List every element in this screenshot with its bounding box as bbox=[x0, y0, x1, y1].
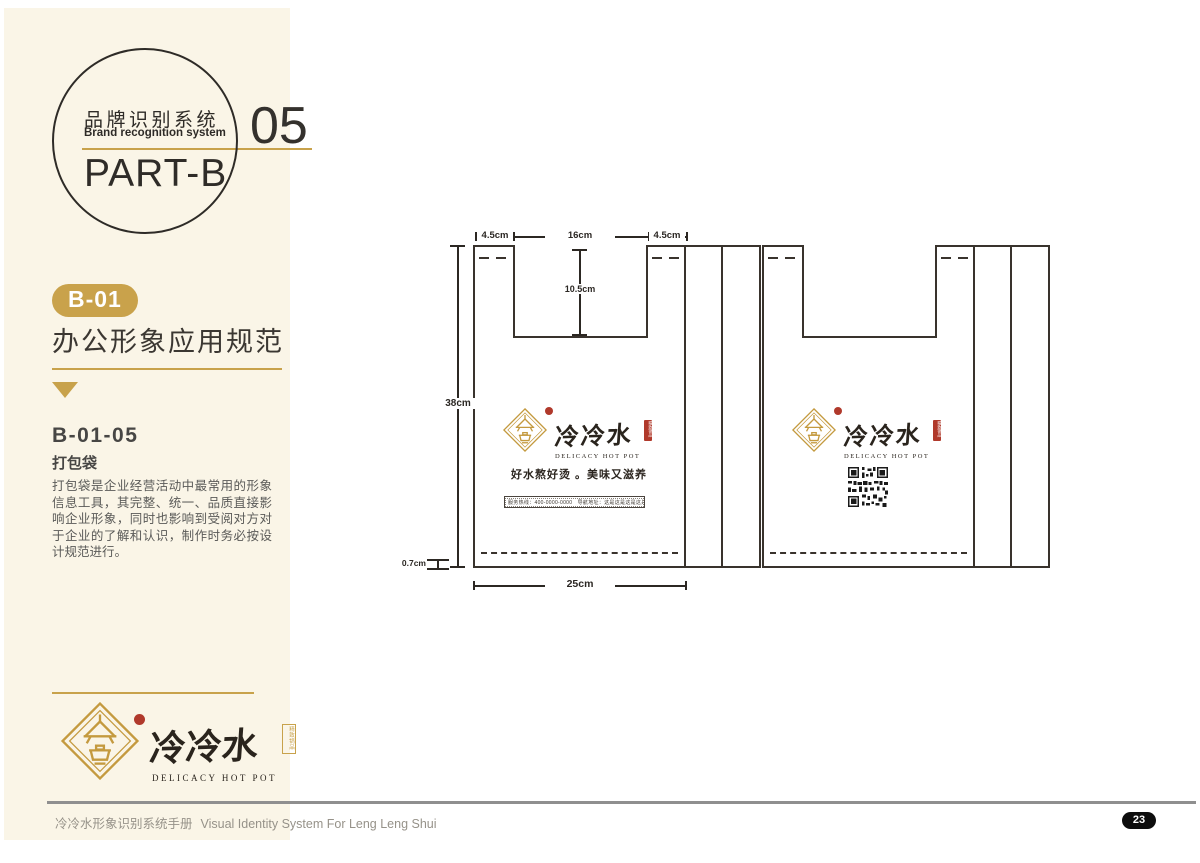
bottom-fold-dashed-line bbox=[770, 552, 967, 554]
dim-cap bbox=[572, 249, 587, 251]
dim-cap bbox=[450, 566, 465, 568]
handle-weld-dash bbox=[958, 257, 968, 259]
brand-logo: 冷冷水 DELICACY HOT POT 精致锅品 bbox=[503, 395, 652, 460]
logo-wordmark-zh: 冷冷水 bbox=[148, 716, 279, 772]
round-seal-icon bbox=[545, 407, 553, 415]
handle-weld-dash bbox=[652, 257, 662, 259]
brand-logo: 冷冷水 DELICACY HOT POT 精致锅品 bbox=[60, 702, 296, 783]
handle-weld-dash bbox=[496, 257, 506, 259]
item-code: B-01-05 bbox=[52, 424, 138, 448]
brand-logo: 冷冷水 DELICACY HOT POT 精致锅品 bbox=[792, 395, 941, 460]
bag-outline bbox=[646, 245, 761, 247]
dim-label-handle-right: 4.5cm bbox=[649, 230, 685, 241]
chapter-number: 05 bbox=[250, 96, 320, 156]
hotpot-diamond-icon bbox=[792, 406, 836, 454]
bag-gusset-fold-line bbox=[973, 245, 975, 568]
footer-caption-en: Visual Identity System For Leng Leng Shu… bbox=[201, 817, 437, 831]
bag-slogan: 好水熬好烫 。美味又滋养 bbox=[473, 466, 685, 482]
gold-rule bbox=[52, 368, 282, 370]
bag-outline bbox=[759, 245, 761, 568]
section-title: 办公形象应用规范 bbox=[52, 320, 284, 359]
bag-info-text: 服务热线：400-0000-0000 导航地址：这是这是这是这是这是这是这是这是… bbox=[505, 498, 644, 507]
part-circle bbox=[52, 48, 238, 234]
bag-front-diagram: 冷冷水 DELICACY HOT POT 精致锅品 好水熬好烫 。美味又滋养 服… bbox=[473, 245, 761, 568]
handle-cutout bbox=[513, 245, 515, 338]
qr-code bbox=[848, 467, 888, 507]
logo-wordmark-en: DELICACY HOT POT bbox=[844, 453, 929, 460]
gold-rule bbox=[52, 692, 254, 694]
handle-cutout bbox=[646, 245, 648, 338]
logo-wordmark-en: DELICACY HOT POT bbox=[555, 453, 640, 460]
handle-weld-dash bbox=[785, 257, 795, 259]
hotpot-diamond-icon bbox=[60, 702, 140, 780]
vi-manual-page: 品牌识别系统 Brand recognition system PART-B B… bbox=[0, 0, 1200, 863]
dim-label-handle-left: 4.5cm bbox=[477, 230, 513, 241]
dim-label-bottom-fold: 0.7cm bbox=[394, 558, 426, 568]
bag-outline bbox=[935, 245, 1050, 247]
vertical-seal: 精致锅品 bbox=[282, 724, 296, 754]
dim-cap bbox=[572, 334, 587, 336]
handle-weld-dash bbox=[768, 257, 778, 259]
handle-cutout bbox=[513, 336, 648, 338]
handle-weld-dash bbox=[941, 257, 951, 259]
dim-tick bbox=[473, 581, 475, 590]
dim-tick bbox=[685, 581, 687, 590]
dim-label-opening: 16cm bbox=[545, 230, 615, 241]
handle-cutout bbox=[802, 336, 937, 338]
bottom-fold-dashed-line bbox=[481, 552, 678, 554]
handle-cutout bbox=[935, 245, 937, 338]
dim-tick bbox=[513, 232, 515, 241]
round-seal-icon bbox=[134, 714, 145, 725]
bag-outline bbox=[762, 566, 1050, 568]
vertical-seal: 精致锅品 bbox=[933, 420, 941, 441]
bag-gusset-fold-line bbox=[1010, 245, 1012, 568]
item-description: 打包袋是企业经营活动中最常用的形象信息工具，其完整、统一、品质直接影响企业形象，… bbox=[52, 478, 272, 561]
footer-caption: 冷冷水形象识别系统手册Visual Identity System For Le… bbox=[55, 813, 437, 832]
bag-outline bbox=[1048, 245, 1050, 568]
bag-info-bar: 服务热线：400-0000-0000 导航地址：这是这是这是这是这是这是这是这是… bbox=[504, 496, 645, 508]
bag-gusset-fold-line bbox=[721, 245, 723, 568]
dim-label-width: 25cm bbox=[545, 578, 615, 590]
dim-line-bottom-fold bbox=[437, 559, 439, 569]
dim-cap bbox=[450, 245, 465, 247]
hotpot-diamond-icon bbox=[503, 406, 547, 454]
logo-wordmark-en: DELICACY HOT POT bbox=[152, 773, 277, 783]
triangle-pointer-icon bbox=[52, 382, 78, 398]
bag-back-diagram: 冷冷水 DELICACY HOT POT 精致锅品 bbox=[762, 245, 1050, 568]
vertical-seal: 精致锅品 bbox=[644, 420, 652, 441]
footer-rule bbox=[47, 801, 1196, 804]
dim-label-depth: 10.5cm bbox=[557, 284, 603, 294]
bag-outline bbox=[473, 566, 761, 568]
footer-caption-zh: 冷冷水形象识别系统手册 bbox=[55, 817, 193, 831]
handle-weld-dash bbox=[669, 257, 679, 259]
section-badge: B-01 bbox=[52, 284, 138, 317]
dim-label-height: 38cm bbox=[437, 398, 479, 409]
bag-gusset-fold-line bbox=[684, 245, 686, 568]
dim-tick bbox=[686, 232, 688, 241]
handle-weld-dash bbox=[479, 257, 489, 259]
item-name: 打包袋 bbox=[52, 452, 97, 473]
bag-outline bbox=[762, 245, 764, 568]
handle-cutout bbox=[802, 245, 804, 338]
logo-wordmark-zh: 冷冷水 bbox=[554, 415, 642, 453]
bag-outline bbox=[473, 245, 515, 247]
page-number-badge: 23 bbox=[1122, 812, 1156, 829]
logo-wordmark-zh: 冷冷水 bbox=[843, 415, 931, 453]
bag-outline bbox=[762, 245, 804, 247]
round-seal-icon bbox=[834, 407, 842, 415]
